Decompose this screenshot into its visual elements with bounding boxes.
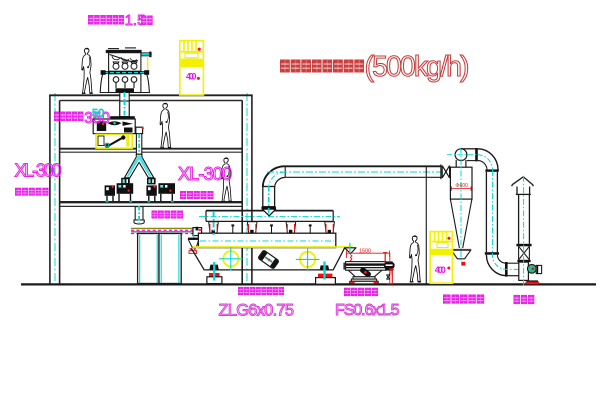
svg-text:ZLG6x0.75: ZLG6x0.75 — [219, 302, 295, 320]
svg-text:(500kg/h): (500kg/h) — [365, 51, 470, 83]
svg-text:400: 400 — [186, 71, 197, 81]
svg-text:400: 400 — [435, 265, 446, 275]
svg-text:50: 50 — [92, 108, 104, 120]
svg-text:XL-300: XL-300 — [15, 161, 62, 181]
svg-text:FS0.6x1.5: FS0.6x1.5 — [335, 302, 400, 319]
svg-text:XL-300: XL-300 — [178, 164, 232, 184]
svg-text:1500: 1500 — [359, 249, 371, 255]
